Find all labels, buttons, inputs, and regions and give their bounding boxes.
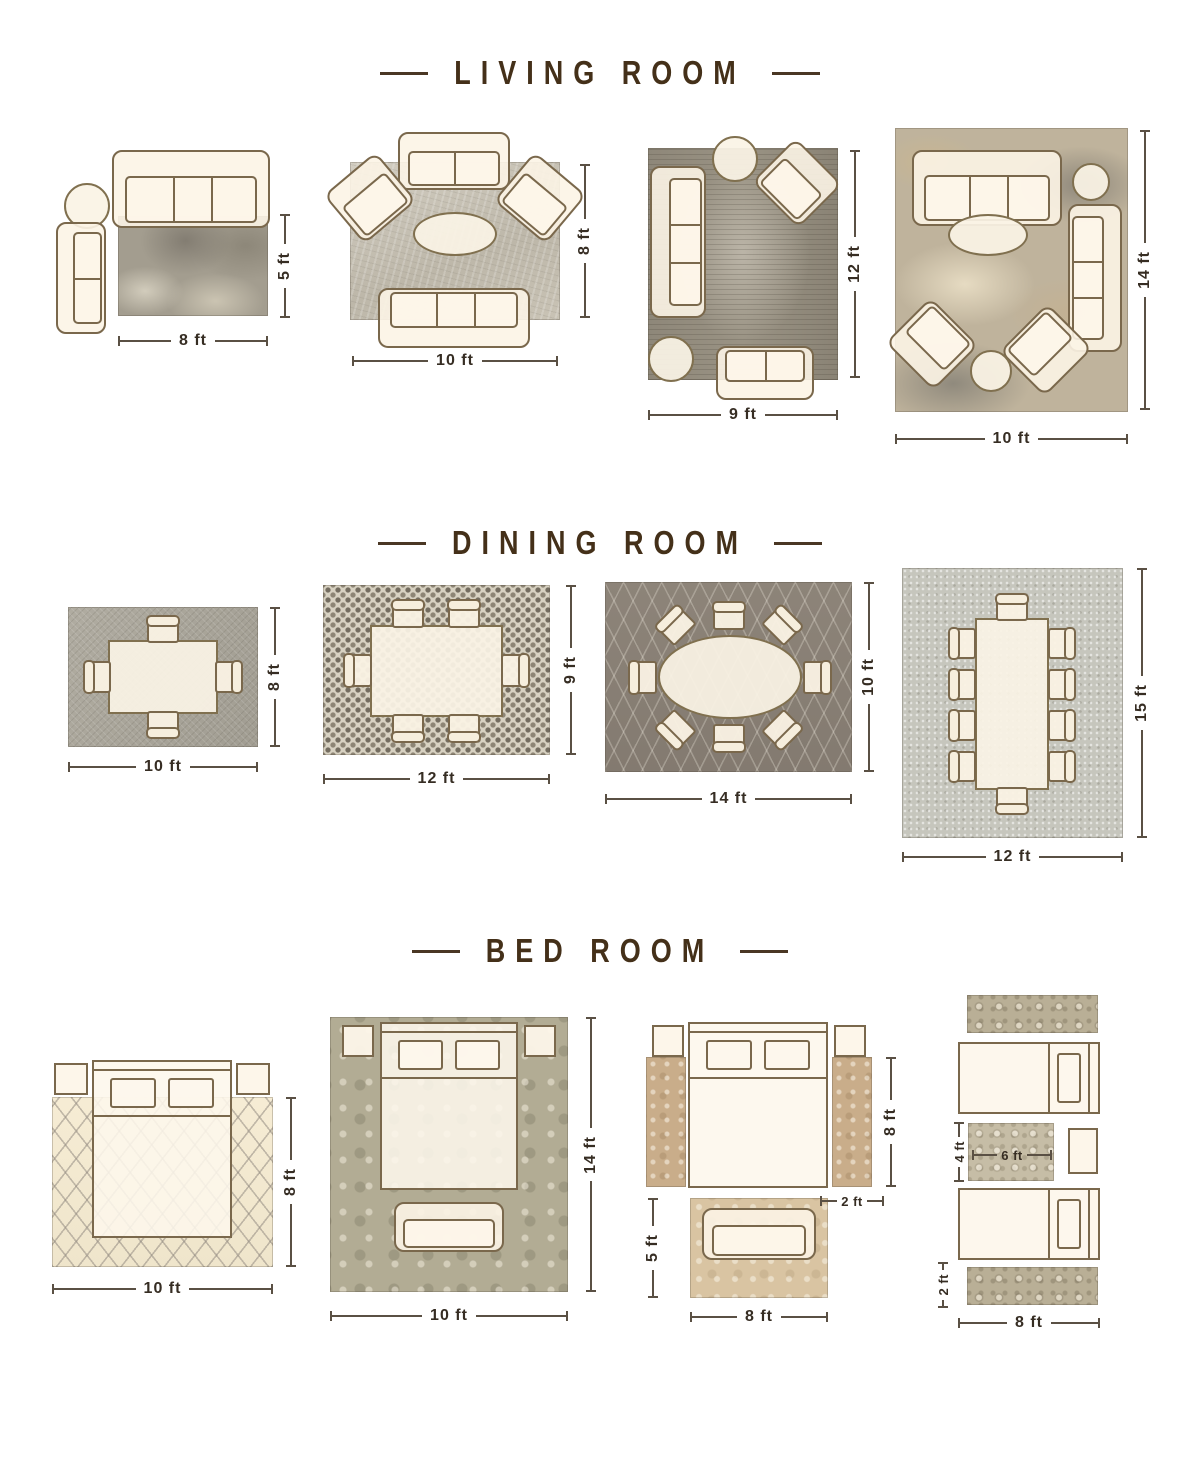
dim-height: 10 ft [860,582,878,772]
dim-line [590,1181,592,1292]
bed [688,1022,828,1188]
dim-line [118,340,171,342]
dim-small-rug-height: 4 ft [950,1122,968,1182]
runner-rug [967,1267,1098,1305]
dim-line [652,1270,654,1298]
runner-rug [646,1057,686,1187]
runner-rug [832,1057,872,1187]
section-title-text: DINING ROOM [452,525,748,563]
dining-chair [448,714,480,741]
dim-line [1144,130,1146,243]
title-dash [774,542,822,545]
dining-chair [713,603,745,630]
nightstand [342,1025,374,1057]
bed-headboard [1090,1190,1098,1258]
pillow [706,1040,752,1070]
nightstand [54,1063,88,1095]
dim-label: 10 ft [136,758,190,776]
bed-headboard [1090,1044,1098,1112]
dim-line [890,1057,892,1100]
dim-label: 10 ft [422,1307,476,1325]
dim-label: 5 ft [644,1226,662,1270]
dining-chair [803,661,830,694]
loveseat [398,132,510,190]
dim-line [942,1300,944,1308]
bed-headboard [382,1024,516,1033]
dim-line [652,1198,654,1226]
dim-line [284,214,286,244]
dim-height: 9 ft [562,585,580,755]
bed-pillow-area [690,1033,826,1079]
dim-width: 10 ft [52,1280,273,1298]
sofa [378,288,530,348]
dim-height: 5 ft [276,214,294,318]
dining-chair [147,617,179,643]
dim-line [274,699,276,747]
dining-chair [448,601,480,628]
dining-chair [1048,669,1074,700]
section-title-text: LIVING ROOM [454,55,746,93]
dining-chair [1048,628,1074,659]
dim-line [1039,856,1123,858]
dim-label: 6 ft [997,1148,1027,1163]
dim-line [590,1017,592,1128]
pillow [398,1040,443,1070]
dim-line [605,798,702,800]
dim-label: 8 ft [282,1160,300,1204]
dim-height: 14 ft [1136,130,1154,410]
bed-pillow-area [1050,1190,1090,1258]
dim-line [274,607,276,655]
section-title-bed-room: BED ROOM [0,936,1200,967]
dining-chair [392,714,424,741]
dim-line [323,778,410,780]
dim-label: 8 ft [266,655,284,699]
bed-body [382,1079,516,1188]
round-side-table [648,336,694,382]
sofa [112,150,270,228]
dim-label: 12 ft [986,848,1040,866]
dim-height: 8 ft [266,607,284,747]
dim-label: 10 ft [860,650,878,704]
dim-height: 8 ft [282,1097,300,1267]
oval-dining-table [658,635,802,719]
dim-label: 14 ft [582,1128,600,1182]
dim-bed-height: 8 ft [882,1057,900,1187]
dim-line [189,1288,273,1290]
dim-line [570,692,572,755]
dim-line [972,1154,997,1156]
bed-body [960,1190,1050,1258]
oval-coffee-table [413,212,497,256]
dim-line [755,798,852,800]
dim-rug-width: 8 ft [690,1308,828,1326]
dim-line [352,360,428,362]
dim-line [584,164,586,219]
dining-chair [950,710,976,741]
dim-line [781,1316,828,1318]
loveseat [56,222,106,334]
bed-pillow-area [1050,1044,1090,1112]
bench [702,1208,816,1260]
dim-height: 8 ft [576,164,594,318]
dim-line [902,856,986,858]
dim-label: 4 ft [952,1137,967,1167]
dim-line [648,414,721,416]
nightstand [834,1025,866,1057]
dim-width: 9 ft [648,406,838,424]
dim-line [284,288,286,318]
dim-line [570,585,572,648]
twin-bed [958,1042,1100,1114]
bed [92,1060,232,1238]
sofa [650,166,706,318]
dim-line [1051,1322,1100,1324]
bed-body [94,1117,230,1236]
dining-chair [996,787,1028,813]
dining-chair [147,711,179,737]
dim-line [868,582,870,650]
dim-label: 8 ft [1007,1314,1051,1332]
pillow [1057,1199,1081,1249]
round-side-table [970,350,1012,392]
dining-chair [501,654,528,687]
dining-chair [215,661,241,693]
runner-rug [967,995,1098,1033]
bed-pillow-area [382,1033,516,1079]
dim-line [215,340,268,342]
dim-height: 14 ft [582,1017,600,1292]
dim-width: 10 ft [895,430,1128,448]
bed-headboard [690,1024,826,1033]
dining-table [370,625,503,717]
dim-label: 8 ft [737,1308,781,1326]
dim-line [476,1315,568,1317]
dining-chair [950,751,976,782]
section-title-dining-room: DINING ROOM [0,528,1200,559]
pillow [110,1078,156,1108]
dim-width: 10 ft [352,352,558,370]
dim-label: 12 ft [410,770,464,788]
pillow [1057,1053,1081,1103]
dim-line [895,438,985,440]
dining-chair [1048,751,1074,782]
bed-headboard [94,1062,230,1071]
dim-line [482,360,558,362]
bed-body [960,1044,1050,1112]
dining-chair [996,595,1028,621]
bed [380,1022,518,1190]
nightstand [1068,1128,1098,1174]
dining-chair [950,628,976,659]
dim-label: 10 ft [136,1280,190,1298]
pillow [764,1040,810,1070]
dim-label: 15 ft [1133,676,1151,730]
dining-chair [950,669,976,700]
dim-line [290,1204,292,1267]
dim-line [463,778,550,780]
dim-label: 8 ft [576,219,594,263]
round-side-table [712,136,758,182]
dining-chair [1048,710,1074,741]
dim-line [765,414,838,416]
dining-chair [85,661,111,693]
dim-line [820,1200,837,1202]
dim-line [1144,297,1146,410]
pillow [168,1078,214,1108]
dim-line [958,1122,960,1137]
rug [118,216,268,316]
section-title-living-room: LIVING ROOM [0,58,1200,89]
loveseat [716,346,814,400]
dim-label: 14 ft [1136,243,1154,297]
dim-line [290,1097,292,1160]
dim-line [190,766,258,768]
dim-height: 15 ft [1133,568,1151,838]
dim-line [958,1167,960,1182]
dim-label: 8 ft [171,332,215,350]
bed-pillow-area [94,1071,230,1117]
dining-chair [713,724,745,751]
dim-width: 8 ft [118,332,268,350]
dim-line [1141,730,1143,838]
title-dash [772,72,820,75]
dim-line [1141,568,1143,676]
sofa [1068,204,1122,352]
dim-line [867,1200,884,1202]
dim-width: 10 ft [330,1307,568,1325]
dim-line [854,150,856,237]
dim-line [68,766,136,768]
pillow [455,1040,500,1070]
bed-body [690,1079,826,1186]
nightstand [652,1025,684,1057]
nightstand [524,1025,556,1057]
dim-label: 10 ft [985,430,1039,448]
dim-label: 10 ft [428,352,482,370]
dim-line [854,291,856,378]
title-dash [740,950,788,953]
nightstand [236,1063,270,1095]
dining-table [975,618,1049,790]
dim-runner-width: 2 ft [934,1262,952,1308]
dim-line [890,1144,892,1187]
dim-label: 8 ft [882,1100,900,1144]
round-side-table [1072,163,1110,201]
dim-height: 12 ft [846,150,864,378]
dim-width: 12 ft [323,770,550,788]
dim-line [52,1288,136,1290]
dim-line [1027,1154,1052,1156]
dim-label: 12 ft [846,237,864,291]
oval-coffee-table [948,214,1028,256]
dim-line [958,1322,1007,1324]
dim-label: 9 ft [721,406,765,424]
dining-table [108,640,218,714]
dim-label: 14 ft [702,790,756,808]
title-dash [412,950,460,953]
dim-rug-height: 5 ft [644,1198,662,1298]
dim-small-rug-width: 6 ft [972,1146,1052,1164]
dim-width: 14 ft [605,790,852,808]
dining-chair [392,601,424,628]
section-title-text: BED ROOM [486,933,715,971]
title-dash [378,542,426,545]
dim-runner-width: 2 ft [820,1192,884,1210]
title-dash [380,72,428,75]
dim-label: 9 ft [562,648,580,692]
dining-chair [345,654,372,687]
dim-width: 10 ft [68,758,258,776]
dim-width: 8 ft [958,1314,1100,1332]
dim-line [1038,438,1128,440]
rug-size-guide: LIVING ROOM 5 ft 8 ft 8 ft 10 ft 12 ft 9… [0,0,1200,1467]
bench [394,1202,504,1252]
dim-line [690,1316,737,1318]
dim-width: 12 ft [902,848,1123,866]
dim-label: 2 ft [837,1194,867,1209]
dim-line [330,1315,422,1317]
dim-label: 5 ft [276,244,294,288]
dining-chair [630,661,657,694]
dim-label: 2 ft [936,1270,951,1300]
dim-line [584,263,586,318]
dim-line [868,704,870,772]
dim-line [942,1262,944,1270]
twin-bed [958,1188,1100,1260]
